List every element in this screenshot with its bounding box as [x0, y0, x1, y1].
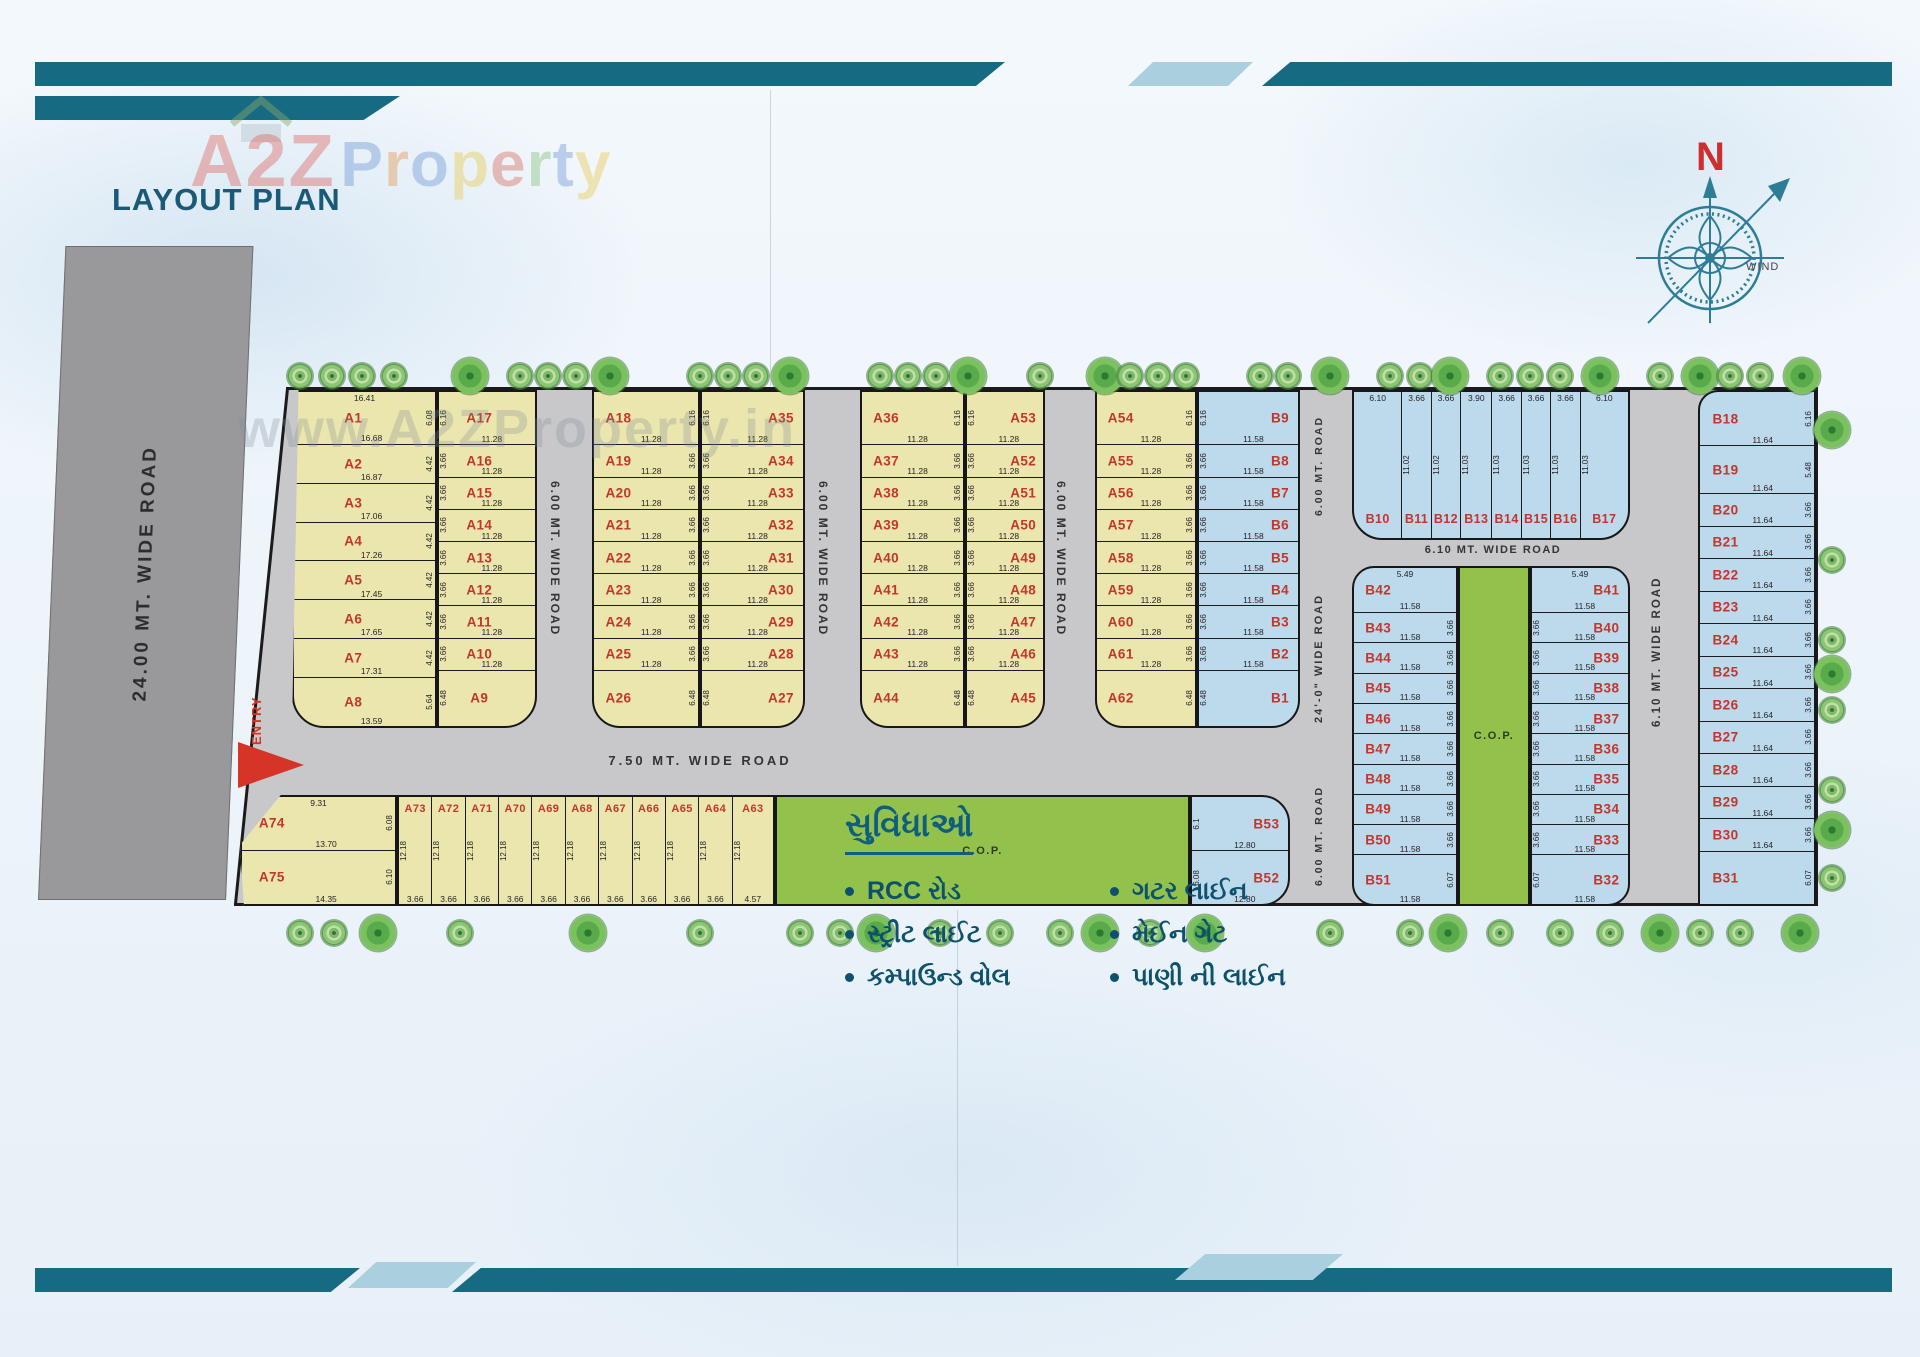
plot-A60: A6011.283.66 — [1097, 605, 1195, 637]
plot-label: A8 — [344, 695, 362, 709]
plot-A52: A5211.283.66 — [967, 444, 1043, 476]
plot-A65: A653.6612.18 — [665, 797, 698, 904]
plot-A70: A703.6612.18 — [498, 797, 531, 904]
plot-dim: 6.07 — [1447, 872, 1455, 888]
plot-dim: 11.28 — [481, 532, 502, 541]
plot-A2: A216.874.42 — [294, 444, 435, 483]
plot-label: A67 — [605, 804, 626, 815]
plot-dim: 3.66 — [689, 614, 697, 630]
plot-label: A69 — [538, 804, 559, 815]
plot-label: B38 — [1593, 681, 1619, 695]
plot-dim: 3.66 — [689, 582, 697, 598]
plot-dim: 3.66 — [1408, 394, 1425, 403]
plot-dim: 6.16 — [703, 410, 711, 426]
plot-dim: 3.66 — [1447, 680, 1455, 696]
plot-B24: B2411.643.66 — [1700, 623, 1814, 656]
amenity-label: RCC રોડ — [867, 877, 961, 906]
plot-label: B10 — [1366, 513, 1390, 526]
entry-arrow-icon — [238, 742, 304, 788]
plot-dim: 3.66 — [540, 895, 557, 904]
plot-dim: 3.66 — [1533, 680, 1541, 696]
plot-label: B6 — [1271, 519, 1289, 533]
plot-label: A14 — [466, 519, 492, 533]
plot-A47: A4711.283.66 — [967, 605, 1043, 637]
plot-A58: A5811.283.66 — [1097, 541, 1195, 573]
tree-icon — [1688, 921, 1713, 946]
plot-A21: A2111.283.66 — [594, 509, 698, 541]
plot-label: A55 — [1108, 454, 1134, 468]
plot-label: A42 — [873, 615, 899, 629]
plot-dim: 11.28 — [998, 596, 1019, 605]
plot-label: B36 — [1593, 742, 1619, 756]
plot-B32: B3211.586.07 — [1532, 854, 1628, 904]
plot-dim: 6.16 — [1200, 410, 1208, 426]
plot-dim: 11.58 — [1400, 602, 1421, 611]
plot-label: B4 — [1271, 583, 1289, 597]
plot-dim: 3.66 — [1805, 762, 1813, 778]
plot-dim: 11.58 — [1400, 663, 1421, 672]
plot-label: A50 — [1010, 519, 1036, 533]
tree-icon — [1312, 358, 1348, 394]
plot-label: B11 — [1405, 513, 1428, 526]
plot-dim: 11.58 — [1400, 895, 1421, 904]
plot-dim: 3.66 — [954, 453, 962, 469]
plot-dim: 11.03 — [1493, 455, 1501, 474]
frame-bar-bottom-right — [452, 1268, 1892, 1292]
plot-dim: 3.66 — [1447, 620, 1455, 636]
plot-A1: A116.4116.686.08 — [294, 392, 435, 444]
plot-label: B16 — [1553, 513, 1577, 526]
plot-dim: 11.28 — [907, 499, 928, 508]
plot-dim: 11.28 — [1141, 564, 1162, 573]
plot-label: B25 — [1713, 666, 1739, 680]
plot-label: A57 — [1108, 519, 1134, 533]
plot-label: A37 — [873, 454, 899, 468]
plot-label: A46 — [1010, 647, 1036, 661]
plot-label: B17 — [1592, 513, 1616, 526]
plot-dim: 3.66 — [474, 895, 491, 904]
plot-group-b10: B106.10B113.6611.02B123.6611.02B133.9011… — [1352, 390, 1630, 540]
plot-label: A39 — [873, 519, 899, 533]
plot-dim: 3.66 — [968, 485, 976, 501]
plot-B23: B2311.643.66 — [1700, 591, 1814, 624]
plot-dim: 11.28 — [641, 628, 662, 637]
plot-group-strips: A733.6612.18A723.6612.18A713.6612.18A703… — [397, 795, 775, 906]
plot-dim: 3.66 — [440, 518, 448, 534]
plot-dim: 6.07 — [1805, 870, 1813, 886]
cop-area-right: C.O.P. — [1458, 566, 1530, 906]
plot-B13: B133.9011.03 — [1460, 392, 1491, 538]
tree-icon — [1378, 364, 1403, 389]
tree-icon — [1820, 698, 1845, 723]
bullet-icon — [845, 930, 854, 939]
plot-dim: 11.28 — [998, 628, 1019, 637]
tree-icon — [924, 364, 949, 389]
plot-A28: A2811.283.66 — [702, 638, 803, 670]
plot-B42: B425.4911.58 — [1354, 568, 1456, 612]
plot-label: B42 — [1365, 583, 1391, 597]
plot-label: B49 — [1365, 803, 1391, 817]
plot-dim: 3.66 — [407, 895, 424, 904]
plot-A46: A4611.283.66 — [967, 638, 1043, 670]
plot-A19: A1911.283.66 — [594, 444, 698, 476]
plot-dim: 3.66 — [1533, 741, 1541, 757]
plot-dim: 12.18 — [667, 840, 675, 860]
plot-label: B9 — [1271, 411, 1289, 425]
plot-label: A36 — [873, 411, 899, 425]
plot-label: B47 — [1365, 742, 1391, 756]
page-title: LAYOUT PLAN — [112, 182, 341, 218]
plot-dim: 6.16 — [689, 410, 697, 426]
plot-dim: 11.58 — [1400, 845, 1421, 854]
tree-icon — [564, 364, 589, 389]
plot-dim: 3.66 — [1557, 394, 1574, 403]
plot-dim: 11.28 — [747, 435, 768, 444]
tree-icon — [1718, 364, 1743, 389]
plot-dim: 3.66 — [703, 485, 711, 501]
plot-dim: 3.66 — [1200, 518, 1208, 534]
plot-B35: B3511.583.66 — [1532, 764, 1628, 794]
plot-B31: B316.07 — [1700, 851, 1814, 904]
plot-group-b4l: A5411.286.16A5511.283.66A5611.283.66A571… — [1095, 390, 1197, 728]
plot-A62: A626.48 — [1097, 670, 1195, 726]
plot-dim: 4.42 — [426, 495, 434, 511]
plot-dim: 4.42 — [426, 650, 434, 666]
plot-dim: 11.28 — [481, 499, 502, 508]
plot-label: A17 — [466, 411, 492, 425]
layout-plan-poster: A2Z Property LAYOUT PLAN www.A2ZProperty… — [0, 0, 1920, 1357]
plot-dim: 6.16 — [440, 410, 448, 426]
plot-dim: 3.66 — [1447, 711, 1455, 727]
tree-icon — [868, 364, 893, 389]
plot-B28: B2811.643.66 — [1700, 753, 1814, 786]
plot-dim: 11.28 — [481, 564, 502, 573]
plot-label: A26 — [605, 692, 631, 706]
plot-A56: A5611.283.66 — [1097, 477, 1195, 509]
plot-dim: 11.28 — [1141, 499, 1162, 508]
plot-group-b2r: A3511.286.16A3411.283.66A3311.283.66A321… — [700, 390, 805, 728]
plot-dim: 11.28 — [641, 435, 662, 444]
plot-group-b42: B425.4911.58B4311.583.66B4411.583.66B451… — [1352, 566, 1458, 906]
plot-A6: A617.654.42 — [294, 599, 435, 638]
plot-A75: A7514.356.10 — [242, 850, 395, 904]
plot-dim: 3.66 — [703, 518, 711, 534]
plot-dim: 3.66 — [1805, 665, 1813, 681]
plot-dim: 3.66 — [507, 895, 524, 904]
plot-B44: B4411.583.66 — [1354, 642, 1456, 672]
plot-dim: 11.28 — [747, 564, 768, 573]
plot-B2: B211.583.66 — [1199, 638, 1298, 670]
plot-dim: 11.28 — [1141, 596, 1162, 605]
plot-dim: 11.64 — [1752, 549, 1773, 558]
plot-A31: A3111.283.66 — [702, 541, 803, 573]
plot-dim: 9.31 — [310, 799, 327, 808]
plot-label: A72 — [438, 804, 459, 815]
plot-dim: 3.66 — [954, 550, 962, 566]
plot-label: A9 — [470, 692, 488, 706]
plot-label: A68 — [571, 804, 592, 815]
plot-dim: 16.41 — [354, 394, 375, 403]
plot-dim: 3.66 — [640, 895, 657, 904]
plot-B8: B811.583.66 — [1199, 444, 1298, 476]
plot-group-b18: B1811.646.16B1911.645.48B2011.643.66B211… — [1698, 390, 1816, 906]
road-label-v2: 6.00 MT. WIDE ROAD — [817, 424, 829, 694]
plot-dim: 6.48 — [954, 691, 962, 707]
plot-dim: 3.66 — [1438, 394, 1455, 403]
plot-label: A19 — [605, 454, 631, 468]
amenity-item: ગટર લાઈન — [1110, 877, 1286, 906]
plot-label: A49 — [1010, 551, 1036, 565]
plot-dim: 3.66 — [954, 485, 962, 501]
plot-label: B5 — [1271, 551, 1289, 565]
plot-dim: 3.66 — [1200, 646, 1208, 662]
plot-B9: B911.586.16 — [1199, 392, 1298, 444]
plot-label: B46 — [1365, 712, 1391, 726]
plot-label: B28 — [1713, 763, 1739, 777]
plot-dim: 11.58 — [1574, 815, 1595, 824]
plot-dim: 11.28 — [747, 596, 768, 605]
plot-dim: 4.42 — [426, 572, 434, 588]
plot-A71: A713.6612.18 — [465, 797, 498, 904]
plot-dim: 11.64 — [1752, 516, 1773, 525]
tree-icon — [1276, 364, 1301, 389]
plot-A27: A276.48 — [702, 670, 803, 726]
plot-A32: A3211.283.66 — [702, 509, 803, 541]
plot-A18: A1811.286.16 — [594, 392, 698, 444]
plot-dim: 6.48 — [1200, 691, 1208, 707]
plot-A16: A1611.283.66 — [439, 444, 535, 476]
plot-label: B21 — [1713, 536, 1739, 550]
plot-label: B34 — [1593, 803, 1619, 817]
plot-dim: 3.66 — [1186, 518, 1194, 534]
plot-dim: 11.28 — [747, 660, 768, 669]
tree-icon — [1488, 921, 1513, 946]
plot-dim: 11.58 — [1243, 564, 1264, 573]
plot-A25: A2511.283.66 — [594, 638, 698, 670]
plot-dim: 11.03 — [1582, 455, 1590, 474]
road-label-right-mid: 24'-0" WIDE ROAD — [1314, 556, 1325, 761]
plot-label: A61 — [1108, 647, 1134, 661]
plot-dim: 3.66 — [968, 646, 976, 662]
plot-label: A40 — [873, 551, 899, 565]
plot-dim: 6.48 — [440, 691, 448, 707]
plot-label: A3 — [344, 496, 362, 510]
plot-B39: B3911.583.66 — [1532, 642, 1628, 672]
plot-dim: 3.66 — [689, 518, 697, 534]
amenities-section: સુવિધાઓ RCC રોડ ગટર લાઈન સ્ટ્રીટ લાઈટ મે… — [845, 806, 1286, 992]
plot-A15: A1511.283.66 — [439, 477, 535, 509]
plot-dim: 11.28 — [481, 596, 502, 605]
tree-icon — [772, 358, 808, 394]
plot-B10: B106.10 — [1354, 392, 1401, 538]
plot-dim: 11.64 — [1752, 841, 1773, 850]
plot-label: A4 — [344, 535, 362, 549]
plot-dim: 5.64 — [426, 694, 434, 710]
plot-B22: B2211.643.66 — [1700, 558, 1814, 591]
plot-dim: 3.66 — [707, 895, 724, 904]
plot-dim: 3.90 — [1468, 394, 1485, 403]
tree-icon — [1582, 358, 1618, 394]
plot-dim: 11.28 — [998, 499, 1019, 508]
plot-A55: A5511.283.66 — [1097, 444, 1195, 476]
plot-label: A33 — [768, 487, 794, 501]
plot-dim: 11.58 — [1574, 784, 1595, 793]
plot-A30: A3011.283.66 — [702, 573, 803, 605]
plot-dim: 11.28 — [641, 596, 662, 605]
plot-B50: B5011.583.66 — [1354, 824, 1456, 854]
tree-icon — [1174, 364, 1199, 389]
plot-group-b1l: A116.4116.686.08A216.874.42A317.064.42A4… — [292, 390, 437, 728]
plot-A39: A3911.283.66 — [862, 509, 963, 541]
plot-dim: 11.64 — [1752, 809, 1773, 818]
plot-dim: 3.66 — [954, 518, 962, 534]
plot-B17: B176.1011.03 — [1580, 392, 1628, 538]
amenity-item: કમ્પાઉન્ડ વોલ — [845, 963, 1080, 992]
plot-label: A5 — [344, 574, 362, 588]
plot-label: B35 — [1593, 772, 1619, 786]
plot-dim: 3.66 — [1805, 502, 1813, 518]
plot-A48: A4811.283.66 — [967, 573, 1043, 605]
amenities-heading: સુવિધાઓ — [845, 806, 973, 855]
plot-B46: B4611.583.66 — [1354, 703, 1456, 733]
plot-dim: 11.28 — [907, 532, 928, 541]
plot-dim: 3.66 — [1533, 771, 1541, 787]
plot-label: B24 — [1713, 633, 1739, 647]
plot-dim: 3.66 — [968, 453, 976, 469]
tree-icon — [1728, 921, 1753, 946]
plot-dim: 11.58 — [1243, 628, 1264, 637]
plot-dim: 12.18 — [400, 840, 408, 860]
plot-A57: A5711.283.66 — [1097, 509, 1195, 541]
plot-dim: 3.66 — [703, 614, 711, 630]
plot-dim: 3.66 — [1805, 535, 1813, 551]
plot-A33: A3311.283.66 — [702, 477, 803, 509]
tree-icon — [1318, 921, 1343, 946]
plot-dim: 11.28 — [907, 435, 928, 444]
plot-dim: 12.18 — [600, 840, 608, 860]
plot-dim: 11.58 — [1400, 633, 1421, 642]
plot-B11: B113.6611.02 — [1401, 392, 1430, 538]
plot-A36: A3611.286.16 — [862, 392, 963, 444]
tree-icon — [1682, 358, 1718, 394]
plot-label: A65 — [671, 804, 692, 815]
plot-label: A64 — [705, 804, 726, 815]
plot-label: A73 — [404, 804, 425, 815]
plot-dim: 17.31 — [361, 667, 382, 676]
plot-dim: 11.28 — [998, 435, 1019, 444]
road-label-v-610: 6.10 MT. WIDE ROAD — [1652, 512, 1664, 792]
road-label-v3: 6.00 MT. WIDE ROAD — [1055, 424, 1067, 694]
plot-dim: 3.66 — [1533, 802, 1541, 818]
plot-A45: A456.48 — [967, 670, 1043, 726]
plot-dim: 12.18 — [533, 840, 541, 860]
plot-dim: 3.66 — [1533, 711, 1541, 727]
plot-dim: 3.66 — [1200, 582, 1208, 598]
plot-dim: 6.16 — [1805, 411, 1813, 427]
plot-label: A34 — [768, 454, 794, 468]
plot-label: A47 — [1010, 615, 1036, 629]
tree-icon — [1548, 921, 1573, 946]
plot-dim: 12.18 — [700, 840, 708, 860]
plot-label: B37 — [1593, 712, 1619, 726]
plot-A14: A1411.283.66 — [439, 509, 535, 541]
plot-B47: B4711.583.66 — [1354, 733, 1456, 763]
plot-label: B29 — [1713, 796, 1739, 810]
plot-dim: 11.58 — [1400, 693, 1421, 702]
plot-dim: 3.66 — [1447, 771, 1455, 787]
plot-dim: 3.66 — [607, 895, 624, 904]
brand-property: Property — [340, 128, 611, 200]
plot-dim: 12.18 — [433, 840, 441, 860]
plot-label: A21 — [605, 519, 631, 533]
plot-A37: A3711.283.66 — [862, 444, 963, 476]
plot-label: B18 — [1713, 412, 1739, 426]
plot-group-b3r: A5311.286.16A5211.283.66A5111.283.66A501… — [965, 390, 1045, 728]
plot-B33: B3311.583.66 — [1532, 824, 1628, 854]
plot-A35: A3511.286.16 — [702, 392, 803, 444]
tree-icon — [1518, 364, 1543, 389]
plot-label: A75 — [259, 871, 285, 885]
plot-dim: 16.68 — [361, 434, 382, 443]
plot-label: A25 — [605, 647, 631, 661]
plot-label: B41 — [1593, 583, 1619, 597]
plot-dim: 3.66 — [954, 614, 962, 630]
plot-dim: 11.64 — [1752, 581, 1773, 590]
plot-label: B48 — [1365, 772, 1391, 786]
plot-B34: B3411.583.66 — [1532, 794, 1628, 824]
plot-dim: 3.66 — [440, 646, 448, 662]
plot-dim: 11.28 — [481, 435, 502, 444]
plot-A13: A1311.283.66 — [439, 541, 535, 573]
plot-label: A27 — [768, 692, 794, 706]
plot-dim: 3.66 — [968, 582, 976, 598]
plot-dim: 11.58 — [1243, 660, 1264, 669]
plot-dim: 11.28 — [641, 467, 662, 476]
bullet-icon — [1110, 973, 1119, 982]
plot-dim: 11.58 — [1243, 435, 1264, 444]
plot-label: A6 — [344, 612, 362, 626]
plot-dim: 4.42 — [426, 456, 434, 472]
plot-dim: 3.66 — [1200, 550, 1208, 566]
plot-dim: 11.58 — [1574, 663, 1595, 672]
plot-B20: B2011.643.66 — [1700, 493, 1814, 526]
tree-icon — [1398, 921, 1423, 946]
plot-label: A51 — [1010, 487, 1036, 501]
plot-B49: B4911.583.66 — [1354, 794, 1456, 824]
plot-label: A48 — [1010, 583, 1036, 597]
plot-label: B43 — [1365, 621, 1391, 635]
plot-B15: B153.6611.03 — [1521, 392, 1550, 538]
plot-A44: A446.48 — [862, 670, 963, 726]
plot-A23: A2311.283.66 — [594, 573, 698, 605]
tree-icon — [950, 358, 986, 394]
tree-icon — [1784, 358, 1820, 394]
plot-dim: 3.66 — [1447, 650, 1455, 666]
plot-label: B33 — [1593, 833, 1619, 847]
wind-label: WIND — [1746, 261, 1779, 273]
plot-dim: 3.66 — [954, 582, 962, 598]
plot-A69: A693.6612.18 — [531, 797, 564, 904]
plot-dim: 3.66 — [1200, 453, 1208, 469]
plot-dim: 11.58 — [1243, 499, 1264, 508]
tree-icon — [1488, 364, 1513, 389]
plot-dim: 3.66 — [689, 646, 697, 662]
plot-A4: A417.264.42 — [294, 522, 435, 561]
plot-B48: B4811.583.66 — [1354, 764, 1456, 794]
plot-label: B19 — [1713, 463, 1739, 477]
plot-dim: 3.66 — [689, 485, 697, 501]
plot-A41: A4111.283.66 — [862, 573, 963, 605]
